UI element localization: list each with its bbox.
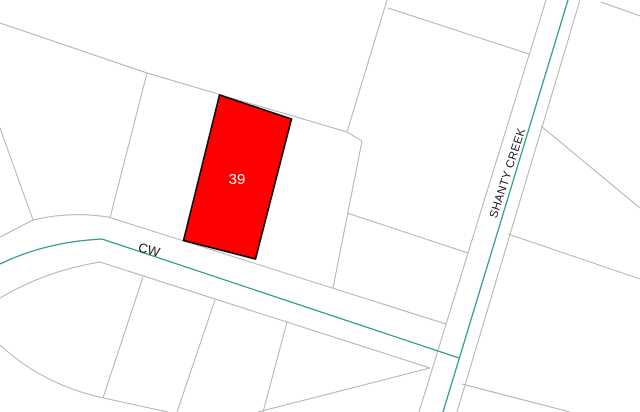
parcel-map-canvas[interactable]: 39 CW SHANTY CREEK: [0, 0, 640, 412]
parcel-number-label: 39: [229, 171, 246, 188]
parcel-map: 39 CW SHANTY CREEK: [0, 0, 640, 412]
map-background: [0, 0, 640, 412]
